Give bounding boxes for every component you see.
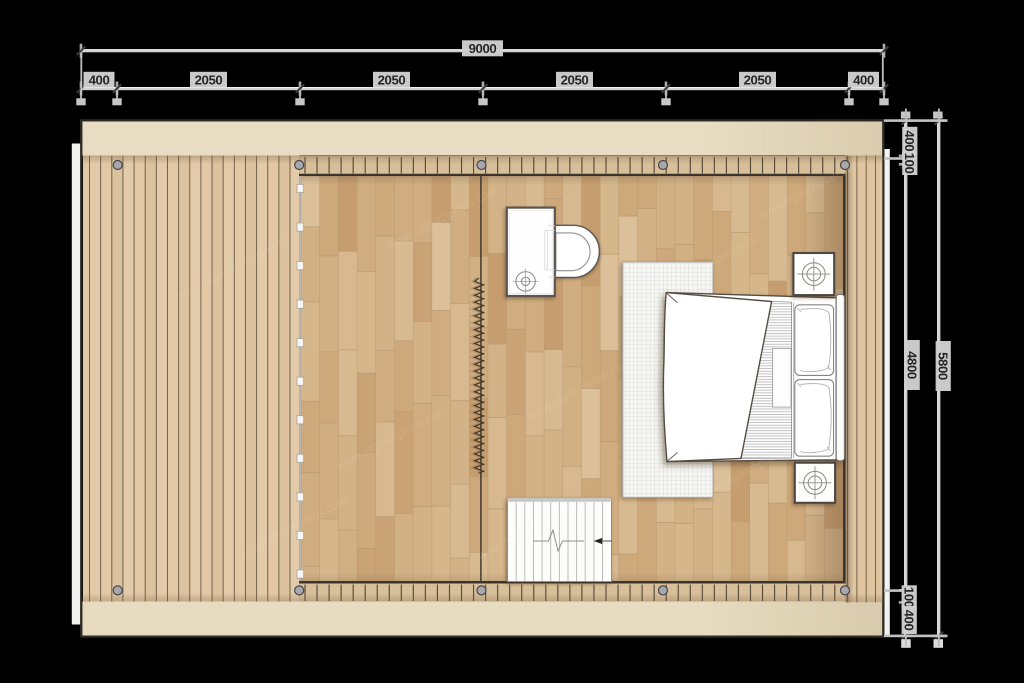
svg-text:400: 400 xyxy=(89,72,110,87)
svg-text:400: 400 xyxy=(902,130,917,151)
svg-text:9000: 9000 xyxy=(469,41,497,56)
svg-text:4800: 4800 xyxy=(905,351,920,379)
svg-text:100: 100 xyxy=(902,587,917,608)
svg-text:5800: 5800 xyxy=(936,352,951,380)
svg-text:400: 400 xyxy=(853,72,874,87)
svg-text:400: 400 xyxy=(902,610,917,631)
svg-text:2050: 2050 xyxy=(195,72,223,87)
svg-text:2050: 2050 xyxy=(561,72,589,87)
svg-text:100: 100 xyxy=(902,153,917,174)
svg-text:2050: 2050 xyxy=(744,72,772,87)
svg-text:2050: 2050 xyxy=(378,72,406,87)
